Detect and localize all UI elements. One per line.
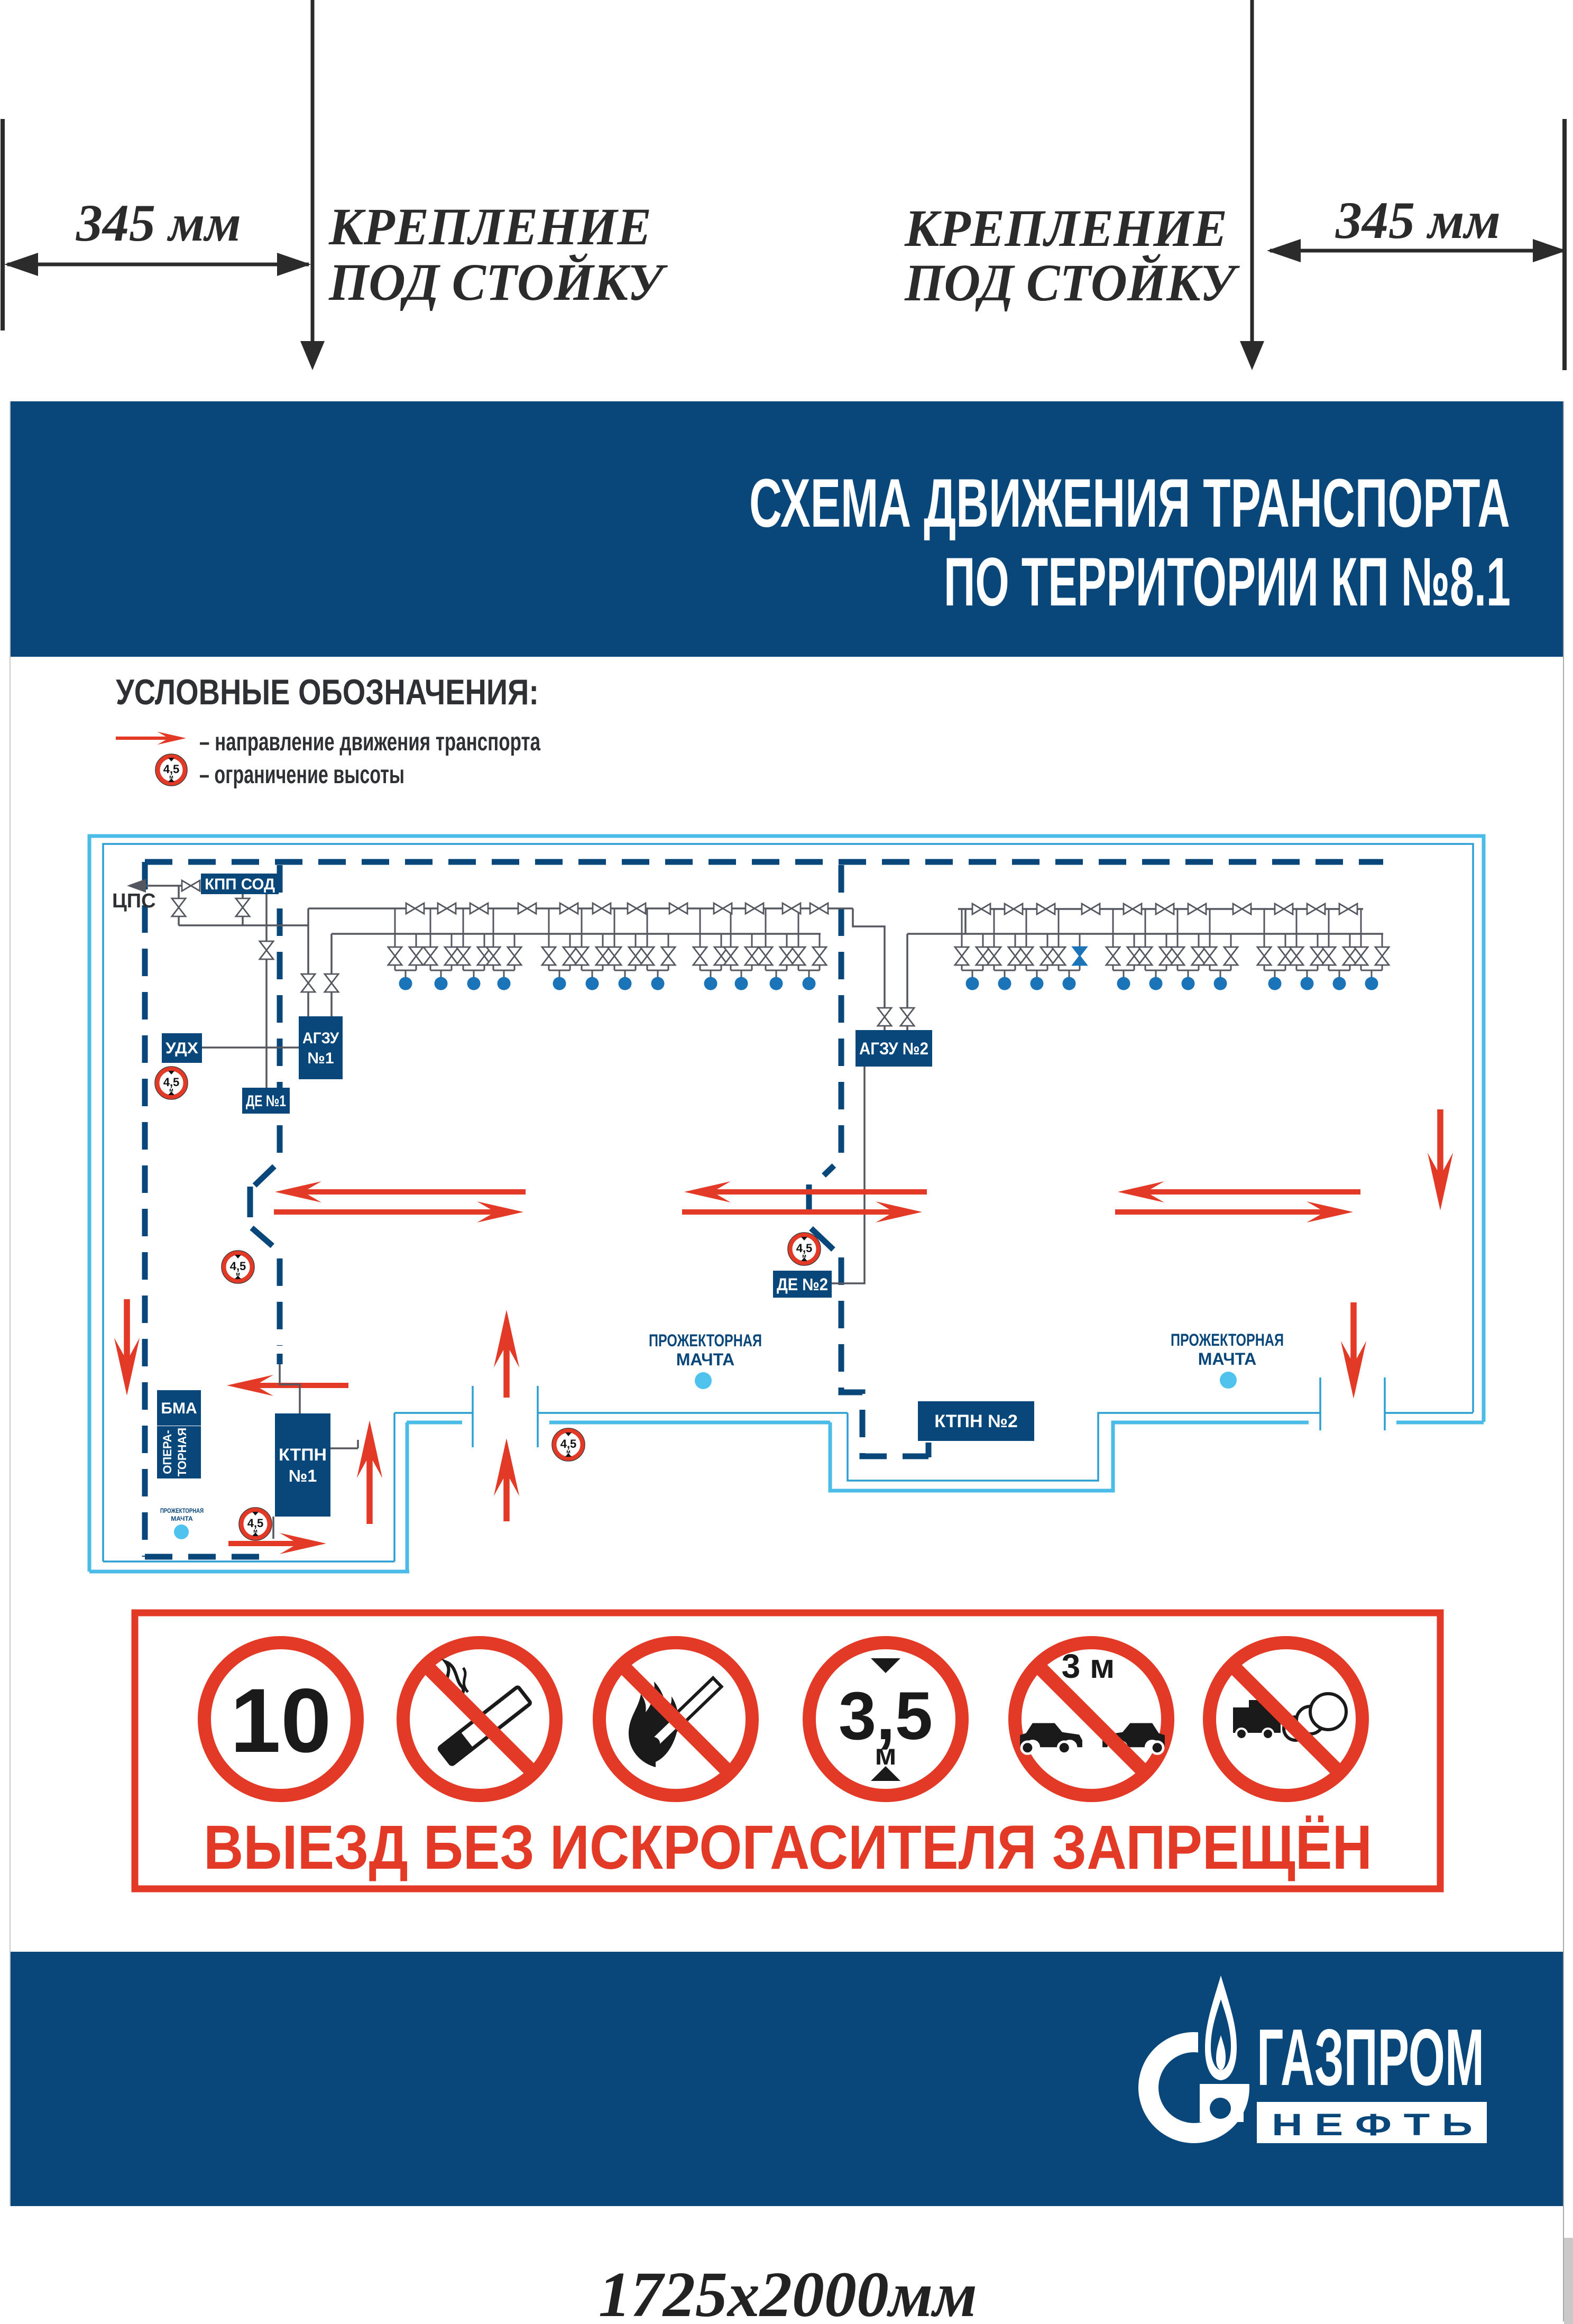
svg-text:МАЧТА: МАЧТА [676,1350,734,1369]
svg-text:ПРОЖЕКТОРНАЯ: ПРОЖЕКТОРНАЯ [160,1507,204,1514]
svg-text:АГЗУ №2: АГЗУ №2 [859,1039,928,1058]
svg-text:– направление движения транспо: – направление движения транспорта [199,728,540,756]
svg-text:ДЕ №1: ДЕ №1 [246,1092,286,1110]
svg-text:КРЕПЛЕНИЕ: КРЕПЛЕНИЕ [904,199,1227,258]
svg-text:м: м [169,1087,173,1094]
svg-text:УДХ: УДХ [165,1040,198,1057]
svg-text:ЦПС: ЦПС [112,890,156,912]
svg-text:БМА: БМА [161,1400,197,1417]
svg-text:УСЛОВНЫЕ ОБОЗНАЧЕНИЯ:: УСЛОВНЫЕ ОБОЗНАЧЕНИЯ: [116,672,539,712]
svg-text:м: м [169,774,173,780]
svg-text:ГАЗПРОМ: ГАЗПРОМ [1257,2013,1484,2102]
svg-text:ПРОЖЕКТОРНАЯ: ПРОЖЕКТОРНАЯ [1171,1330,1284,1349]
svg-text:КТПН: КТПН [279,1445,327,1464]
svg-text:ПОД СТОЙКУ: ПОД СТОЙКУ [904,253,1240,312]
svg-text:№1: №1 [289,1466,317,1485]
svg-text:КПП СОД: КПП СОД [205,876,275,893]
svg-text:345 мм: 345 мм [1335,191,1501,250]
svg-text:345 мм: 345 мм [76,194,241,252]
svg-text:ДЕ №2: ДЕ №2 [777,1275,828,1294]
svg-text:ТОРНАЯ: ТОРНАЯ [176,1428,189,1476]
svg-text:– ограничение высоты: – ограничение высоты [199,761,404,789]
svg-text:10: 10 [230,1670,331,1771]
svg-text:3 м: 3 м [1062,1647,1115,1685]
svg-text:КТПН №2: КТПН №2 [934,1411,1018,1431]
svg-text:1725х2000мм: 1725х2000мм [599,2259,977,2324]
svg-text:м: м [566,1449,571,1455]
svg-text:МАЧТА: МАЧТА [171,1515,193,1522]
svg-text:м: м [875,1738,896,1771]
svg-text:ПОД СТОЙКУ: ПОД СТОЙКУ [328,253,668,311]
svg-text:МАЧТА: МАЧТА [1198,1349,1256,1368]
svg-text:ВЫЕЗД БЕЗ ИСКРОГАСИТЕЛЯ ЗАПРЕЩ: ВЫЕЗД БЕЗ ИСКРОГАСИТЕЛЯ ЗАПРЕЩЁН [204,1813,1372,1882]
svg-text:ОПЕРА-: ОПЕРА- [161,1430,174,1474]
svg-text:ПРОЖЕКТОРНАЯ: ПРОЖЕКТОРНАЯ [649,1331,762,1350]
svg-text:м: м [236,1271,240,1278]
svg-text:№1: №1 [307,1050,334,1067]
svg-text:м: м [253,1528,257,1535]
svg-text:КРЕПЛЕНИЕ: КРЕПЛЕНИЕ [328,197,651,256]
svg-text:АГЗУ: АГЗУ [302,1030,339,1047]
svg-text:м: м [802,1253,806,1260]
svg-text:ПО ТЕРРИТОРИИ КП №8.1: ПО ТЕРРИТОРИИ КП №8.1 [944,543,1511,620]
svg-text:Н Е Ф Т Ь: Н Е Ф Т Ь [1272,2108,1473,2142]
svg-text:СХЕМА ДВИЖЕНИЯ ТРАНСПОРТА: СХЕМА ДВИЖЕНИЯ ТРАНСПОРТА [749,464,1510,541]
